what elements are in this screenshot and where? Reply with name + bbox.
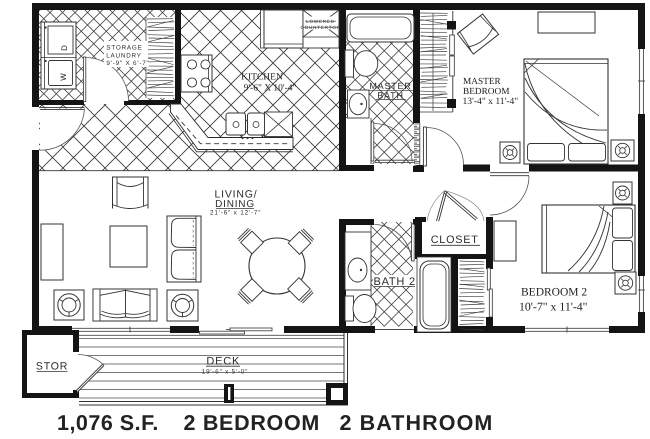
svg-text:STORAGE: STORAGE (106, 45, 142, 52)
svg-text:BATH 2: BATH 2 (373, 276, 416, 288)
svg-text:13'-4" x 11'-4": 13'-4" x 11'-4" (463, 96, 519, 107)
svg-text:2 BEDROOM: 2 BEDROOM (184, 411, 321, 435)
svg-text:DECK: DECK (206, 356, 240, 368)
svg-text:9'-9" X 6'-7": 9'-9" X 6'-7" (106, 60, 149, 67)
svg-text:BEDROOM 2: BEDROOM 2 (521, 287, 587, 299)
svg-text:STOR: STOR (36, 360, 68, 372)
svg-text:10'-7" x 11'-4": 10'-7" x 11'-4" (519, 300, 588, 314)
svg-text:9'-6" X 10'-4": 9'-6" X 10'-4" (244, 84, 297, 94)
svg-text:MASTER: MASTER (463, 77, 502, 87)
svg-text:1,076 S.F.: 1,076 S.F. (57, 411, 159, 435)
svg-text:LAUNDRY: LAUNDRY (106, 53, 142, 60)
svg-text:21'-6" x 12'-7": 21'-6" x 12'-7" (210, 210, 261, 217)
svg-text:D: D (60, 45, 69, 51)
svg-text:BATH: BATH (377, 90, 404, 100)
svg-text:KITCHEN: KITCHEN (241, 73, 283, 83)
svg-text:W: W (59, 73, 68, 81)
svg-text:19'-6" x 5'-0": 19'-6" x 5'-0" (202, 369, 248, 376)
svg-text:CLOSET: CLOSET (431, 234, 479, 246)
svg-text:2 BATHROOM: 2 BATHROOM (340, 411, 494, 435)
